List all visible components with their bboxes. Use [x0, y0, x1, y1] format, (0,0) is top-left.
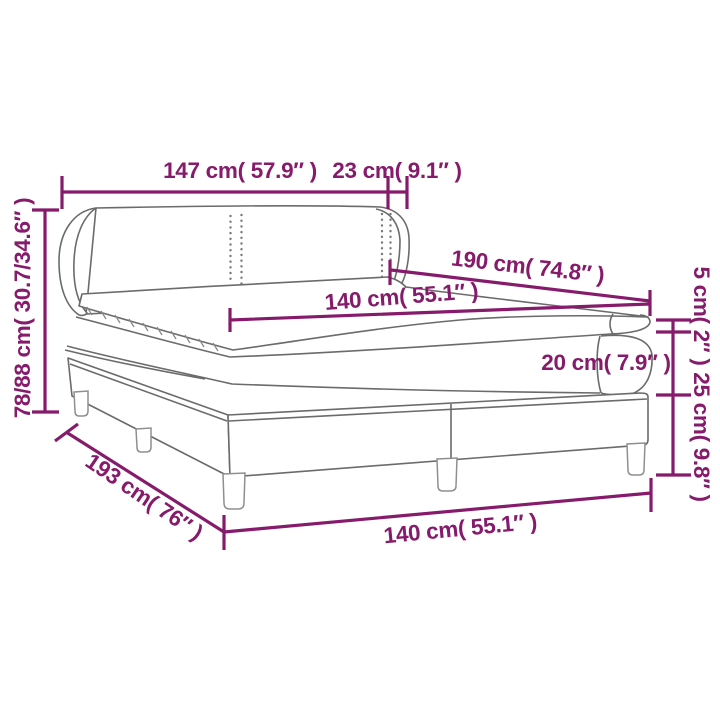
diagram-canvas: 147 cm( 57.9″ ) 23 cm( 9.1″ ) 78/88 cm( …: [0, 0, 720, 720]
dim-headboard-width: 147 cm( 57.9″ ) 23 cm( 9.1″ ): [62, 158, 462, 209]
label-bed-length-bottom: 193 cm( 76″ ): [81, 448, 207, 545]
leg-left-middle: [136, 428, 151, 452]
box-spring-base: [68, 358, 648, 477]
label-base-height: 25 cm( 9.8″ ): [689, 372, 714, 501]
dim-headboard-height-line: [32, 210, 59, 412]
label-headboard-height: 78/88 cm( 30.7/34.6″ ): [10, 198, 35, 419]
leg-front-right: [627, 443, 645, 475]
dim-base-width: 140 cm( 55.1″ ): [224, 478, 651, 550]
dim-right-heights-line: [656, 320, 691, 475]
label-wing-depth: 23 cm( 9.1″ ): [332, 158, 461, 183]
label-mattress-height: 20 cm( 7.9″ ): [541, 350, 670, 375]
leg-back-left: [74, 391, 88, 416]
leg-front-middle: [437, 458, 457, 491]
dim-headboard-height: 78/88 cm( 30.7/34.6″ ): [10, 198, 59, 419]
leg-front-corner: [223, 473, 245, 509]
bed-dimension-diagram: 147 cm( 57.9″ ) 23 cm( 9.1″ ) 78/88 cm( …: [0, 0, 720, 720]
label-headboard-width: 147 cm( 57.9″ ): [163, 158, 317, 183]
label-topper-height: 5 cm( 2″ ): [689, 266, 714, 365]
